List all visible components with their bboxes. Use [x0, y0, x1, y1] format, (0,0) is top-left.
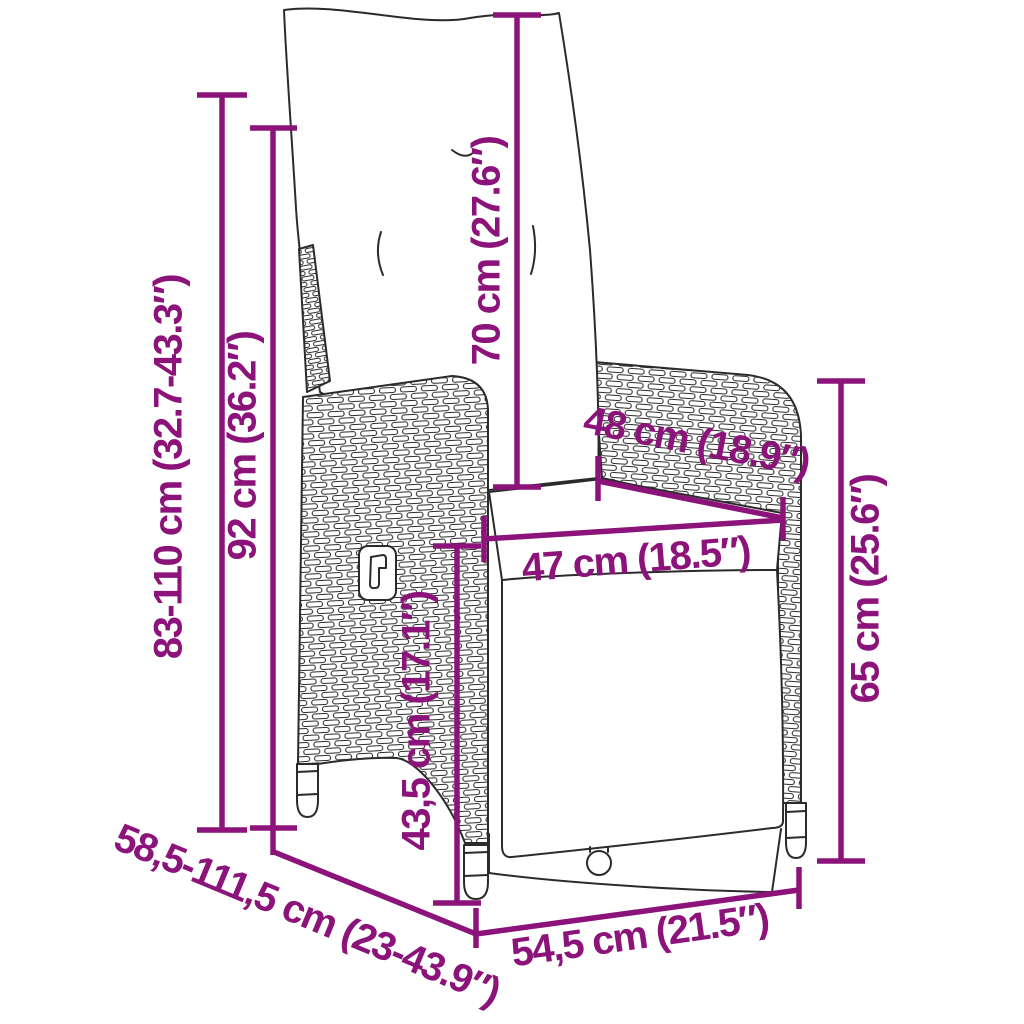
diagram-canvas: 83-110 cm (32.7-43.3″) 92 cm (36.2″) 70 …	[0, 0, 1024, 1024]
dim-overall-depth: 58,5-111,5 cm (23-43.9″)	[108, 816, 506, 1015]
dimension-diagram: 83-110 cm (32.7-43.3″) 92 cm (36.2″) 70 …	[0, 0, 1024, 1024]
dim-label-overall-depth: 58,5-111,5 cm (23-43.9″)	[108, 816, 506, 1015]
dim-backrest-height: 92 cm (36.2″)	[221, 128, 297, 855]
right-foot	[786, 803, 806, 858]
dim-label-overall-width: 54,5 cm (21.5″)	[508, 896, 771, 976]
dim-armrest-height: 65 cm (25.6″)	[817, 381, 888, 861]
dim-label-seat-height: 43,5 cm (17.1″)	[395, 591, 439, 850]
dim-label-armrest-height: 65 cm (25.6″)	[844, 474, 888, 703]
caster-wheel	[587, 847, 611, 875]
dim-overall-width: 54,5 cm (21.5″)	[476, 867, 799, 975]
dim-label-back-cushion-height: 70 cm (27.6″)	[465, 136, 509, 365]
back-left-leg	[297, 764, 318, 817]
dim-label-overall-height: 83-110 cm (32.7-43.3″)	[147, 275, 191, 659]
front-left-leg	[464, 845, 488, 899]
dim-label-backrest-height: 92 cm (36.2″)	[221, 331, 265, 560]
recline-handle	[359, 546, 396, 600]
